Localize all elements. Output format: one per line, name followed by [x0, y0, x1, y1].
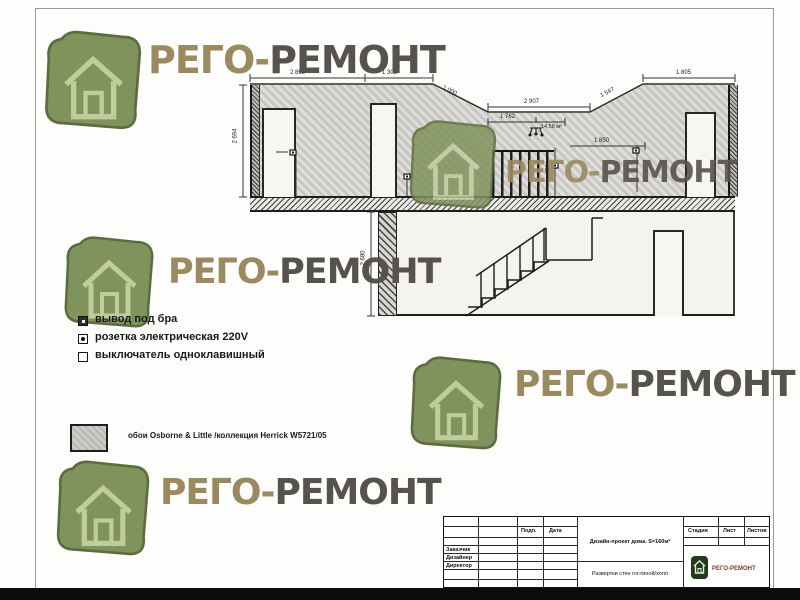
dim-mid-sub: 1 762	[500, 114, 515, 120]
title-block-logo-icon	[691, 556, 708, 579]
watermark-brand-part1: РЕГО-	[514, 364, 628, 405]
sconce-outlet-symbol	[78, 316, 88, 326]
watermark-brand-part2: РЕМОНТ	[600, 155, 737, 190]
title-block-line	[683, 537, 770, 538]
door-upper-middle	[370, 103, 397, 197]
dim-mid-top: 2 907	[524, 99, 539, 105]
door-lower-right	[653, 230, 684, 316]
sheet-title: Развертки стен гостиной/холл	[580, 571, 680, 577]
stage-header: Стадия	[688, 528, 708, 534]
legend-label-switch: выключатель одноклавишный	[95, 349, 265, 361]
legend-label-socket: розетка электрическая 220V	[95, 331, 248, 343]
title-block-line	[443, 537, 577, 538]
sconce-symbol-dot	[82, 320, 85, 323]
upper-wall-left-edge	[250, 85, 260, 197]
watermark-brand-part1: РЕГО-	[505, 155, 600, 190]
title-block-line	[443, 579, 577, 580]
house-logo-icon	[400, 352, 510, 454]
title-block-brand: РЕГО-РЕМОНТ	[712, 566, 756, 572]
wallpaper-swatch	[70, 424, 108, 452]
dim-right-leader: 1 850	[594, 138, 609, 144]
watermark-brand: РЕГО-РЕМОНТ	[505, 155, 737, 190]
house-logo-icon	[46, 456, 158, 560]
title-block-line	[443, 545, 577, 546]
area-label: 14,58 м²	[541, 124, 562, 130]
col-sign-header: Подп.	[521, 528, 537, 534]
title-block-line	[443, 526, 577, 527]
row-label-customer: Заказчик	[446, 547, 470, 553]
house-logo-icon	[691, 556, 708, 579]
single-switch-symbol	[78, 352, 88, 362]
title-block-line	[443, 553, 577, 554]
socket-symbol-dot	[81, 337, 85, 341]
watermark-brand-part2: РЕМОНТ	[274, 472, 440, 513]
material-label: обои Osborne & Little /коллекция Herrick…	[128, 431, 327, 440]
dim-top-right: 1 805	[676, 70, 691, 76]
row-label-director: Директор	[446, 563, 472, 569]
door-upper-left	[262, 108, 296, 197]
watermark-brand-part2: РЕМОНТ	[269, 38, 445, 82]
title-block-line	[718, 516, 719, 545]
power-socket-symbol	[78, 334, 88, 344]
title-block-line	[744, 516, 745, 545]
scan-edge	[0, 588, 800, 600]
title-block-line	[443, 561, 683, 562]
watermark-brand: РЕГО-РЕМОНТ	[168, 252, 440, 292]
watermark-brand-part1: РЕГО-	[148, 38, 269, 82]
title-block-line	[683, 545, 770, 546]
col-date-header: Дата	[549, 528, 562, 534]
legend-label-sconce: вывод под бра	[95, 313, 177, 325]
watermark-brand-part2: РЕМОНТ	[628, 364, 794, 405]
project-title: Дизайн-проект дома. S=160м²	[580, 539, 680, 545]
row-label-designer: Дизайнер	[446, 555, 472, 561]
title-block-line	[443, 569, 577, 570]
title-block-line	[683, 526, 770, 527]
drawing-sheet: 2 895 1 302 1 000 2 907 1 762 1 850 1 54…	[0, 0, 800, 600]
sheet-header: Лист	[723, 528, 736, 534]
watermark-brand: РЕГО-РЕМОНТ	[160, 472, 441, 513]
house-logo-icon	[403, 116, 501, 213]
watermark-brand-part1: РЕГО-	[168, 252, 279, 292]
watermark-brand-part1: РЕГО-	[160, 472, 274, 513]
watermark-brand: РЕГО-РЕМОНТ	[148, 38, 445, 82]
dim-height-upper: 2 694	[233, 128, 239, 143]
watermark-brand-part2: РЕМОНТ	[279, 252, 440, 292]
title-block-line	[577, 516, 578, 588]
sheets-header: Листов	[747, 528, 767, 534]
house-logo-icon	[36, 26, 148, 134]
watermark-brand: РЕГО-РЕМОНТ	[514, 364, 795, 405]
